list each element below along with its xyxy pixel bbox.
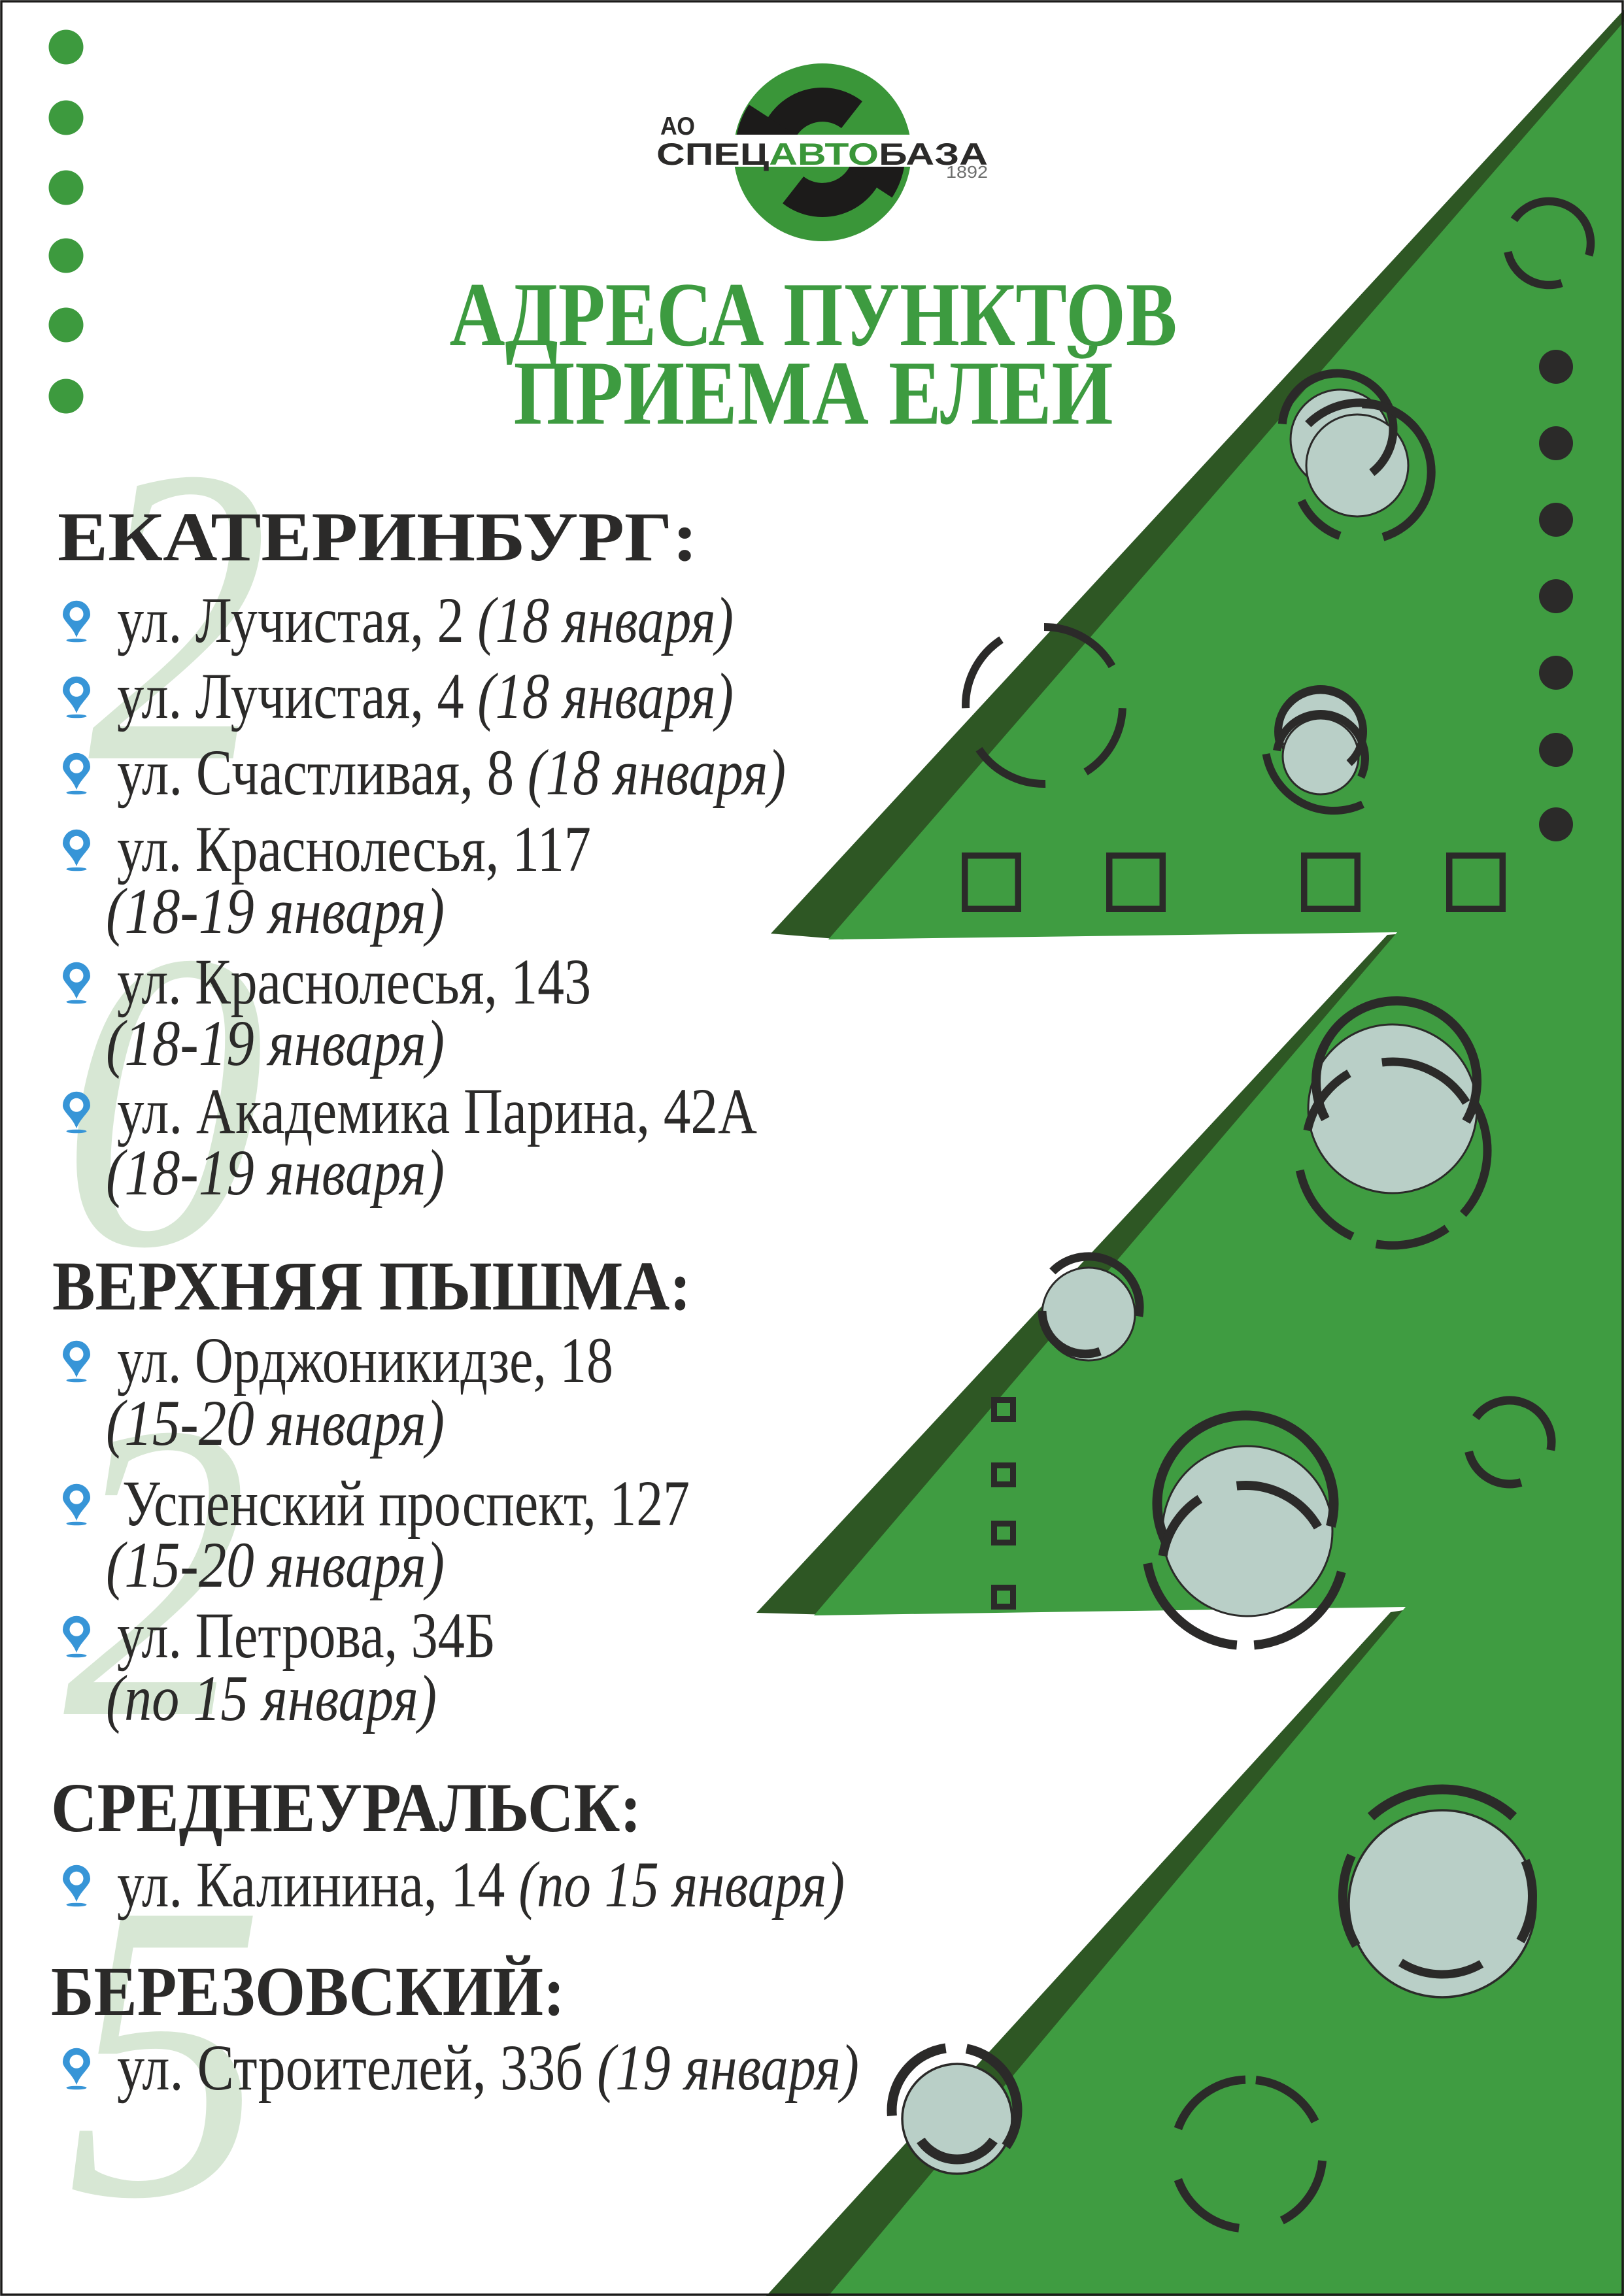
svg-text:ВЕРХНЯЯ ПЫШМА:: ВЕРХНЯЯ ПЫШМА:: [52, 1248, 691, 1325]
svg-text:ул. Орджоникидзе, 18: ул. Орджоникидзе, 18: [117, 1324, 613, 1396]
svg-text:(15-20 января): (15-20 января): [106, 1387, 445, 1459]
svg-text:ПРИЕМА ЕЛЕЙ: ПРИЕМА ЕЛЕЙ: [514, 343, 1113, 444]
svg-text:ул. Петрова, 34Б: ул. Петрова, 34Б: [117, 1599, 496, 1672]
svg-text:(18-19 января): (18-19 января): [106, 1007, 445, 1079]
svg-text:ул. Лучистая, 2 (18 января): ул. Лучистая, 2 (18 января): [117, 584, 734, 656]
svg-text:(18-19 января): (18-19 января): [106, 1136, 445, 1209]
svg-text:1892: 1892: [946, 162, 988, 182]
svg-text:(18-19 января): (18-19 января): [106, 875, 445, 947]
svg-text:БЕРЕЗОВСКИЙ:: БЕРЕЗОВСКИЙ:: [51, 1953, 565, 2031]
svg-text:СПЕЦАВТОБАЗА: СПЕЦАВТОБАЗА: [656, 137, 988, 171]
svg-text:ул. Счастливая, 8 (18 января): ул. Счастливая, 8 (18 января): [117, 736, 786, 809]
svg-text:СРЕДНЕУРАЛЬСК:: СРЕДНЕУРАЛЬСК:: [51, 1770, 641, 1847]
svg-text:ул. Строителей, 33б (19 января: ул. Строителей, 33б (19 января): [117, 2031, 859, 2104]
svg-text:ул. Калинина, 14 (по 15 января: ул. Калинина, 14 (по 15 января): [117, 1848, 845, 1921]
svg-text:(по 15 января): (по 15 января): [106, 1662, 437, 1734]
svg-text:ЕКАТЕРИНБУРГ:: ЕКАТЕРИНБУРГ:: [58, 499, 698, 576]
svg-text:(15-20 января): (15-20 января): [106, 1528, 445, 1601]
svg-text:ул. Лучистая, 4 (18 января): ул. Лучистая, 4 (18 января): [117, 660, 734, 732]
